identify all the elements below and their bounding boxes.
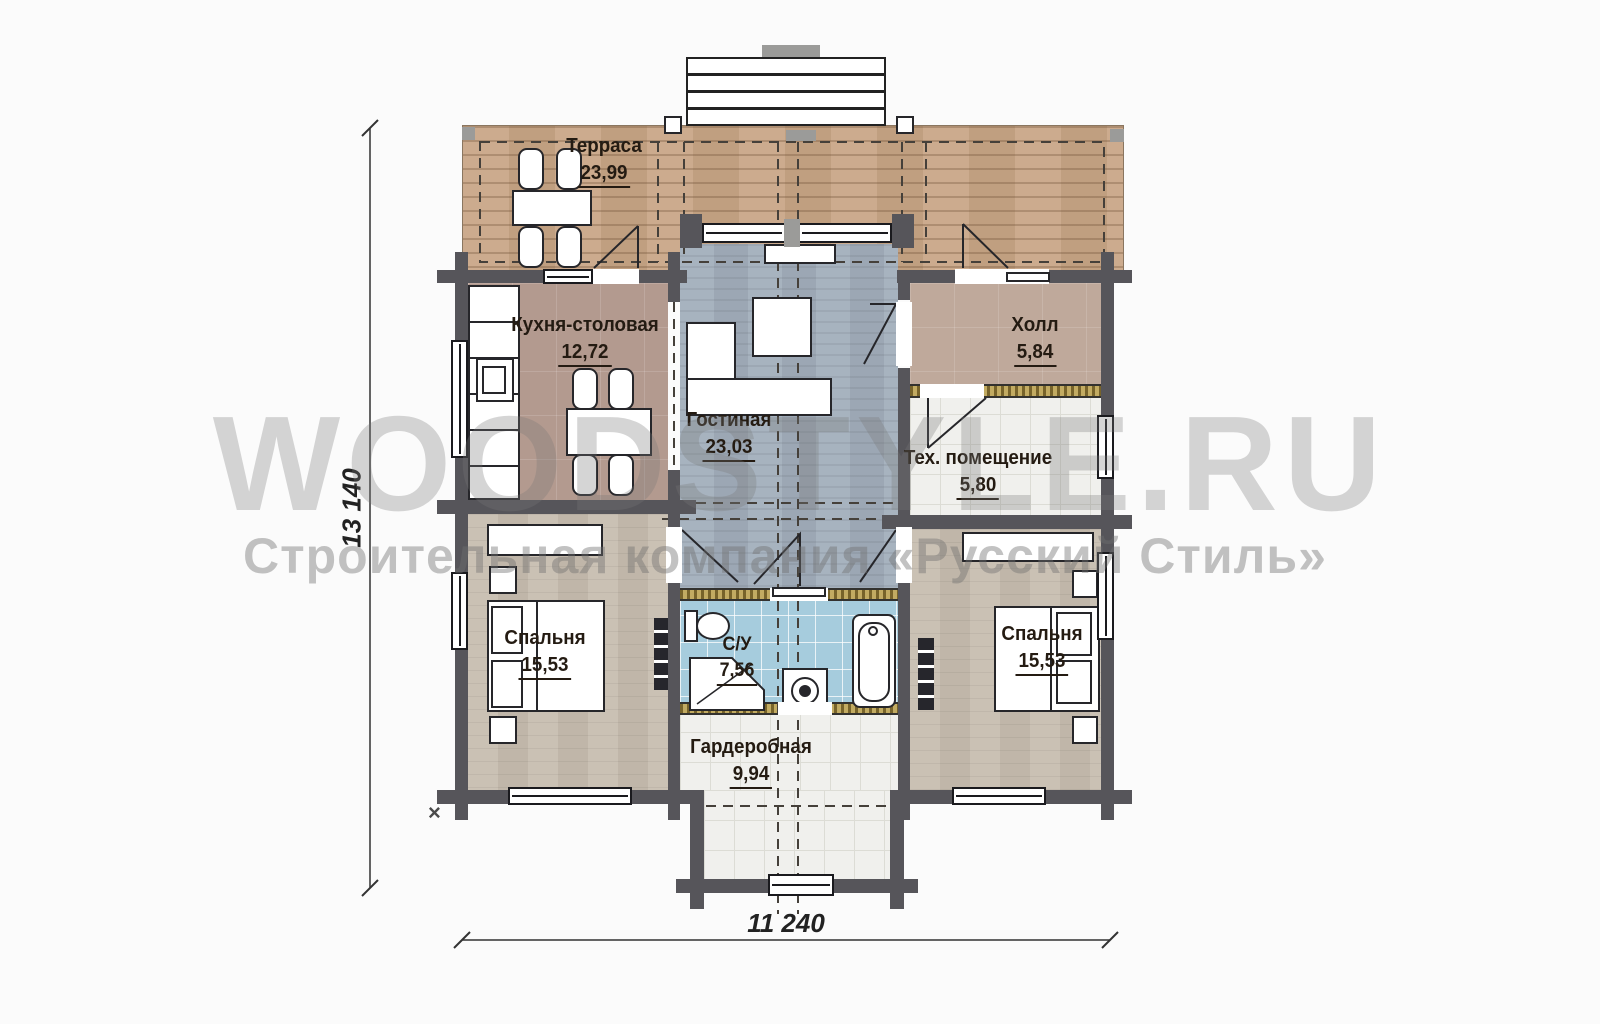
log-end [1114, 515, 1132, 529]
window-bedroom-right [1097, 552, 1114, 640]
room-area: 9,94 [730, 762, 772, 789]
terrace-chair [518, 148, 544, 190]
room-label-terrace: Терраса 23,99 [566, 134, 642, 188]
log-end [1114, 790, 1132, 804]
log-end [668, 804, 680, 820]
door-leaf-bathroom [772, 587, 826, 597]
terrace-post [896, 116, 914, 134]
log-end [437, 500, 455, 514]
window-kitchen-left [451, 340, 468, 458]
room-label-hall: Холл 5,84 [1011, 313, 1058, 367]
kitchen-chair [572, 368, 598, 410]
wall-segment [898, 283, 910, 300]
sliding-door-symbol [764, 244, 836, 264]
terrace-table [512, 190, 592, 226]
kitchen-table [566, 408, 652, 456]
room-label-bathroom: С/У 7,56 [717, 634, 757, 686]
room-label-living: Гостиная 23,03 [687, 408, 772, 462]
porch-cap [762, 45, 820, 57]
room-area: 5,80 [957, 473, 999, 500]
door-opening-kitchen-terrace [593, 269, 639, 284]
porch-landing [786, 130, 816, 141]
terrace-post [462, 127, 475, 140]
terrace-chair [518, 226, 544, 268]
log-end [898, 804, 910, 820]
dimension-height: 13 140 [337, 468, 368, 548]
dresser [962, 532, 1094, 562]
log-end [1101, 252, 1114, 270]
room-name: Гостиная [687, 408, 772, 432]
wall-post [680, 214, 702, 248]
wall-segment [898, 583, 910, 790]
washing-machine-door [799, 685, 811, 697]
opening-bath-bottom [778, 702, 832, 715]
wall-segment [668, 283, 680, 302]
wall-post [892, 214, 914, 248]
log-end [455, 252, 468, 270]
room-label-kitchen: Кухня-столовая 12,72 [511, 313, 659, 367]
porch-step [686, 74, 886, 92]
terrace-post [1110, 129, 1124, 142]
room-label-tech: Тех. помещение 5,80 [904, 446, 1052, 500]
wall-segment [668, 583, 680, 790]
wall-kitchen-bedroom [455, 500, 680, 514]
nightstand [489, 566, 517, 594]
room-label-bedroom-right: Спальня 15,53 [1001, 622, 1082, 676]
dimension-width: 11 240 [747, 908, 825, 939]
porch-step [686, 57, 886, 75]
window-bedroom-left-bottom [508, 787, 632, 805]
room-name: Спальня [504, 626, 585, 650]
nightstand [1072, 716, 1098, 744]
bathtub-drain [868, 626, 878, 636]
room-name: Гардеробная [690, 735, 812, 759]
living-table [752, 297, 812, 357]
nightstand [489, 716, 517, 744]
room-name: Кухня-столовая [511, 313, 659, 337]
log-end [690, 893, 704, 909]
room-name: С/У [717, 634, 757, 657]
door-opening-bedroom-right [896, 527, 912, 583]
door-opening-living-hall [896, 302, 912, 366]
room-area: 5,84 [1014, 340, 1056, 367]
room-area: 7,56 [717, 660, 757, 686]
kitchen-chair [572, 454, 598, 496]
window-bedroom-left [451, 572, 468, 650]
terrace-chair [556, 226, 582, 268]
entry-floor [704, 790, 890, 880]
log-end [1101, 804, 1114, 820]
room-area: 23,99 [578, 161, 631, 188]
window-bedroom-right-bottom [952, 787, 1046, 805]
nightstand [1072, 570, 1098, 598]
wall-outer-right [1101, 270, 1114, 804]
room-area: 12,72 [559, 340, 612, 367]
door-opening-bedroom-left [666, 527, 682, 583]
room-area: 15,53 [519, 653, 572, 680]
window-kitchen-terrace [543, 269, 593, 284]
room-name: Спальня [1001, 622, 1082, 646]
log-end [668, 252, 680, 270]
door-opening-hall-tech [920, 384, 984, 398]
kitchen-chair [608, 368, 634, 410]
room-label-wardrobe: Гардеробная 9,94 [690, 735, 812, 789]
entry-door [768, 874, 834, 896]
corner-mark: × [428, 800, 441, 826]
kitchen-sink-bowl [482, 366, 506, 394]
dresser [487, 524, 603, 556]
room-name: Тех. помещение [904, 446, 1052, 470]
hall-floor [910, 283, 1101, 384]
kitchen-chair [608, 454, 634, 496]
porch-step [686, 91, 886, 109]
terrace-post [664, 116, 682, 134]
log-end [437, 270, 455, 283]
log-end [904, 879, 918, 893]
window-mullion [784, 219, 800, 247]
floor-plan-page: Терраса 23,99 Кухня-столовая 12,72 Гости… [0, 0, 1600, 1024]
wardrobe-unit [918, 638, 934, 710]
log-end [676, 879, 690, 893]
window-living-terrace [702, 223, 786, 243]
room-name: Терраса [566, 134, 642, 158]
log-end [680, 500, 696, 514]
log-end [1114, 270, 1132, 283]
room-name: Холл [1011, 313, 1058, 337]
wall-segment [668, 470, 680, 527]
wall-tech-bedroom [898, 515, 1114, 529]
log-end [890, 893, 904, 909]
window-living-terrace [798, 223, 892, 243]
wall-entry-left [690, 790, 704, 893]
door-leaf-hall [1006, 272, 1050, 282]
window-tech-right [1097, 415, 1114, 479]
room-label-bedroom-left: Спальня 15,53 [504, 626, 585, 680]
room-area: 23,03 [703, 435, 756, 462]
room-area: 15,53 [1016, 649, 1069, 676]
log-end [455, 804, 468, 820]
porch-step [686, 108, 886, 126]
